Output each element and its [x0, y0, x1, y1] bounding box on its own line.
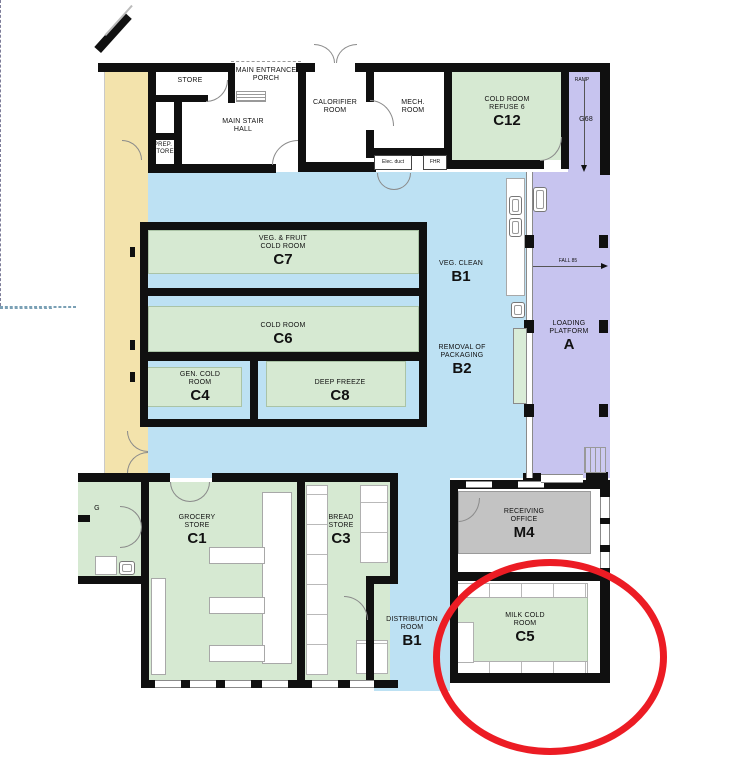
wall — [366, 72, 374, 102]
window — [312, 680, 338, 688]
elec-duct-label: Elec. duct — [382, 159, 404, 165]
room-label-calorifier: CALORIFIER ROOM — [313, 99, 357, 115]
diagonal-wall — [94, 13, 131, 53]
wall — [140, 419, 427, 427]
edge-text-fragment: G — [94, 505, 100, 513]
sink-icon — [119, 561, 135, 575]
sink-icon — [533, 187, 547, 212]
corridor-dashed-line — [0, 308, 52, 309]
wall — [140, 352, 427, 361]
shelf — [151, 578, 166, 675]
fall-line — [533, 266, 603, 267]
door-arc — [272, 140, 298, 165]
wall — [600, 63, 610, 175]
wall — [366, 576, 374, 688]
wall — [140, 222, 148, 296]
wall — [78, 515, 90, 522]
wall — [78, 576, 148, 584]
room-label-c3: BREAD STORE C3 — [328, 514, 353, 546]
wall — [100, 473, 170, 482]
room-label-removal: REMOVAL OF PACKAGING B2 — [438, 344, 485, 376]
room-label-c6: COLD ROOM C6 — [261, 322, 306, 346]
wall — [148, 133, 176, 140]
counter — [95, 556, 117, 575]
wall — [390, 473, 398, 583]
wall — [140, 352, 148, 427]
sink-icon — [509, 218, 522, 237]
door-panel — [513, 328, 527, 404]
room-label-c12: COLD ROOM REFUSE 6 C12 — [485, 96, 530, 128]
fall-arrow-icon — [601, 263, 608, 269]
wall — [250, 352, 258, 427]
wall — [444, 63, 452, 167]
wall — [212, 473, 398, 482]
wall — [419, 296, 427, 360]
wall — [444, 160, 544, 169]
window — [600, 524, 610, 545]
fhr-label: FHR — [430, 159, 440, 165]
wall — [298, 162, 376, 172]
room-label-c4: GEN. COLD ROOM C4 — [180, 371, 220, 403]
room-label-porch: MAIN ENTRANCE PORCH — [236, 67, 297, 83]
wall — [298, 63, 306, 172]
wall — [174, 95, 182, 165]
highlight-circle — [433, 559, 667, 755]
shelf — [262, 492, 292, 664]
room-label-distribution: DISTRIBUTION ROOM B1 — [386, 616, 438, 648]
shelf — [209, 597, 265, 614]
wall — [561, 63, 569, 167]
window — [350, 680, 374, 688]
door-arc — [206, 80, 228, 102]
window — [541, 474, 583, 483]
room-label-c7: VEG. & FRUIT COLD ROOM C7 — [259, 235, 307, 267]
ramp-label: RAMP — [575, 77, 589, 83]
room-label-mech: MECH. ROOM — [401, 99, 425, 115]
room-label-stair-hall: MAIN STAIR HALL — [222, 118, 264, 134]
room-label-store: STORE — [178, 77, 203, 85]
fhr-box: FHR — [423, 155, 447, 170]
ramp-code-label: G68 — [579, 116, 593, 124]
shelf — [306, 485, 328, 675]
wall — [419, 222, 427, 296]
wall — [140, 296, 148, 360]
column — [599, 235, 608, 248]
porch-dashed-edge — [231, 61, 301, 62]
room-label-loading: LOADING PLATFORM A — [549, 320, 588, 352]
column — [599, 404, 608, 417]
wall — [228, 63, 235, 103]
door-arc — [314, 44, 335, 63]
column — [524, 235, 534, 248]
fall-label: FALL 85 — [559, 258, 577, 264]
column — [599, 320, 608, 333]
wall — [156, 95, 208, 102]
room-label-c8: DEEP FREEZE C8 — [315, 379, 366, 403]
sink-icon — [511, 302, 525, 318]
elec-duct-box: Elec. duct — [374, 155, 412, 170]
ramp-arrow-icon — [581, 165, 587, 172]
wall — [148, 63, 156, 173]
shelf — [209, 645, 265, 662]
wall — [297, 473, 305, 686]
wall — [78, 473, 100, 482]
window — [600, 497, 610, 518]
window — [466, 481, 492, 488]
window — [262, 680, 288, 688]
door-leaf — [130, 340, 135, 350]
door-arc — [370, 100, 394, 126]
entrance-steps — [236, 91, 266, 102]
platform-steps — [584, 447, 606, 473]
wall — [140, 222, 427, 230]
door-leaf — [130, 372, 135, 382]
window — [155, 680, 181, 688]
wall — [419, 352, 427, 427]
wall — [586, 472, 608, 485]
room-label-m4: RECEIVING OFFICE M4 — [504, 508, 544, 540]
room-label-c1: GROCERY STORE C1 — [179, 514, 216, 546]
sink-icon — [509, 196, 522, 215]
window — [225, 680, 251, 688]
wall — [561, 160, 569, 169]
door-arc — [336, 44, 357, 63]
window — [600, 552, 610, 568]
wall — [148, 164, 276, 173]
window — [190, 680, 216, 688]
shelf — [209, 547, 265, 564]
wall — [140, 288, 427, 296]
column — [524, 404, 534, 417]
floor-plan: Elec. duct FHR STORE MAIN ENTRANCE PORCH… — [0, 0, 744, 761]
dock-edge — [0, 0, 2, 306]
door-leaf — [130, 247, 135, 257]
shelf — [360, 485, 388, 563]
room-label-prep-store: PREP. STORE — [152, 142, 174, 156]
room-label-veg-clean: VEG. CLEAN B1 — [439, 260, 483, 284]
wall — [98, 63, 231, 72]
